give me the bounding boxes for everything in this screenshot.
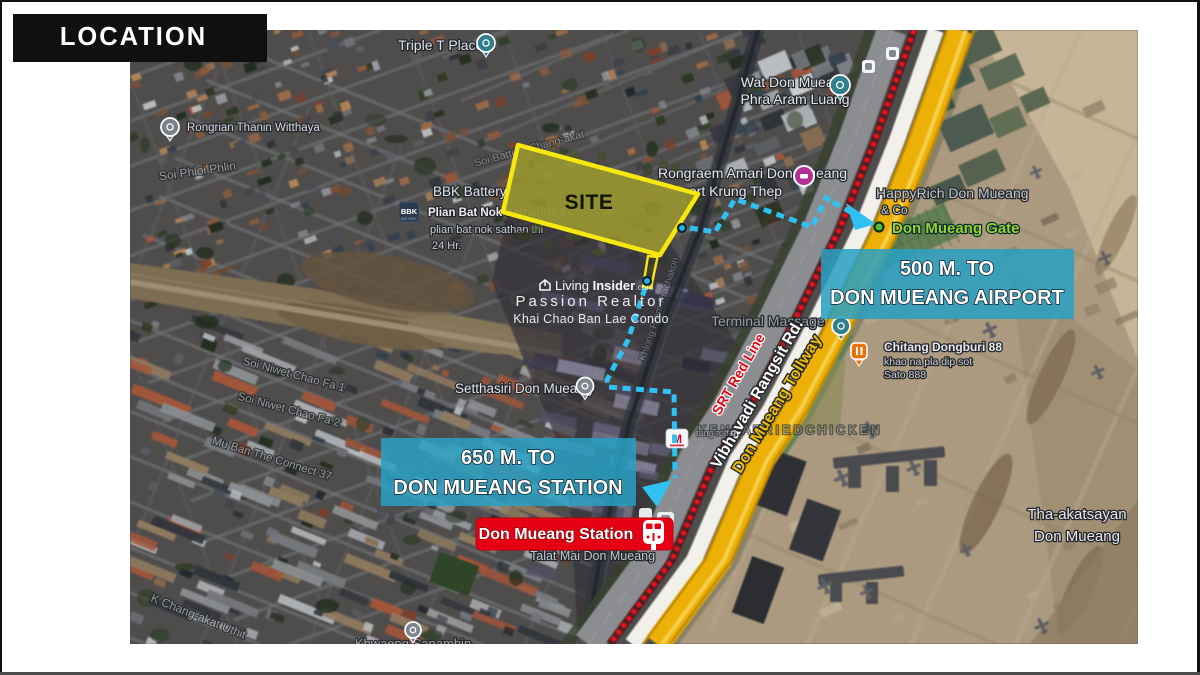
svg-text:Talat Mai Don Mueang: Talat Mai Don Mueang	[530, 549, 655, 563]
svg-text:tang rotfai: tang rotfai	[696, 428, 736, 438]
svg-text:BBK Battery: BBK Battery	[433, 184, 507, 199]
svg-text:khao na pla dip sot: khao na pla dip sot	[884, 356, 972, 368]
svg-text:Setthasiri Don Mueang: Setthasiri Don Mueang	[455, 381, 592, 396]
svg-text:Triple T Place: Triple T Place	[398, 37, 484, 53]
svg-text:DON MUEANG AIRPORT: DON MUEANG AIRPORT	[830, 287, 1064, 309]
svg-text:Passion Realtor: Passion Realtor	[516, 293, 667, 310]
svg-text:650 M. TO: 650 M. TO	[461, 447, 555, 469]
svg-text:BBK: BBK	[401, 207, 418, 216]
svg-text:Chitang Dongburi 88: Chitang Dongburi 88	[884, 340, 1002, 354]
svg-text:Don Mueang Station: Don Mueang Station	[479, 526, 634, 543]
svg-text:Tha-akatsayan: Tha-akatsayan	[1027, 506, 1126, 523]
svg-text:Don Mueang: Don Mueang	[1034, 528, 1120, 545]
svg-text:Khai Chao Ban Lae Condo: Khai Chao Ban Lae Condo	[513, 312, 669, 326]
svg-text:DON MUEANG STATION: DON MUEANG STATION	[393, 477, 622, 499]
svg-text:Sato 888: Sato 888	[884, 369, 926, 381]
svg-text:HappyRich Don Mueang: HappyRich Don Mueang	[876, 185, 1029, 201]
svg-text:SITE: SITE	[565, 191, 614, 214]
svg-text:Rongrian Thanin Witthaya: Rongrian Thanin Witthaya	[187, 122, 320, 134]
svg-text:Don Mueang Gate: Don Mueang Gate	[892, 220, 1020, 237]
svg-text:500 M. TO: 500 M. TO	[900, 258, 994, 280]
svg-text:Rongraem Amari Don Mueang: Rongraem Amari Don Mueang	[658, 165, 847, 181]
svg-text:Terminal Massage: Terminal Massage	[711, 313, 825, 329]
svg-text:BATTERY: BATTERY	[401, 217, 417, 221]
svg-text:24 Hr.: 24 Hr.	[432, 240, 461, 252]
svg-text:& Co: & Co	[881, 203, 908, 217]
